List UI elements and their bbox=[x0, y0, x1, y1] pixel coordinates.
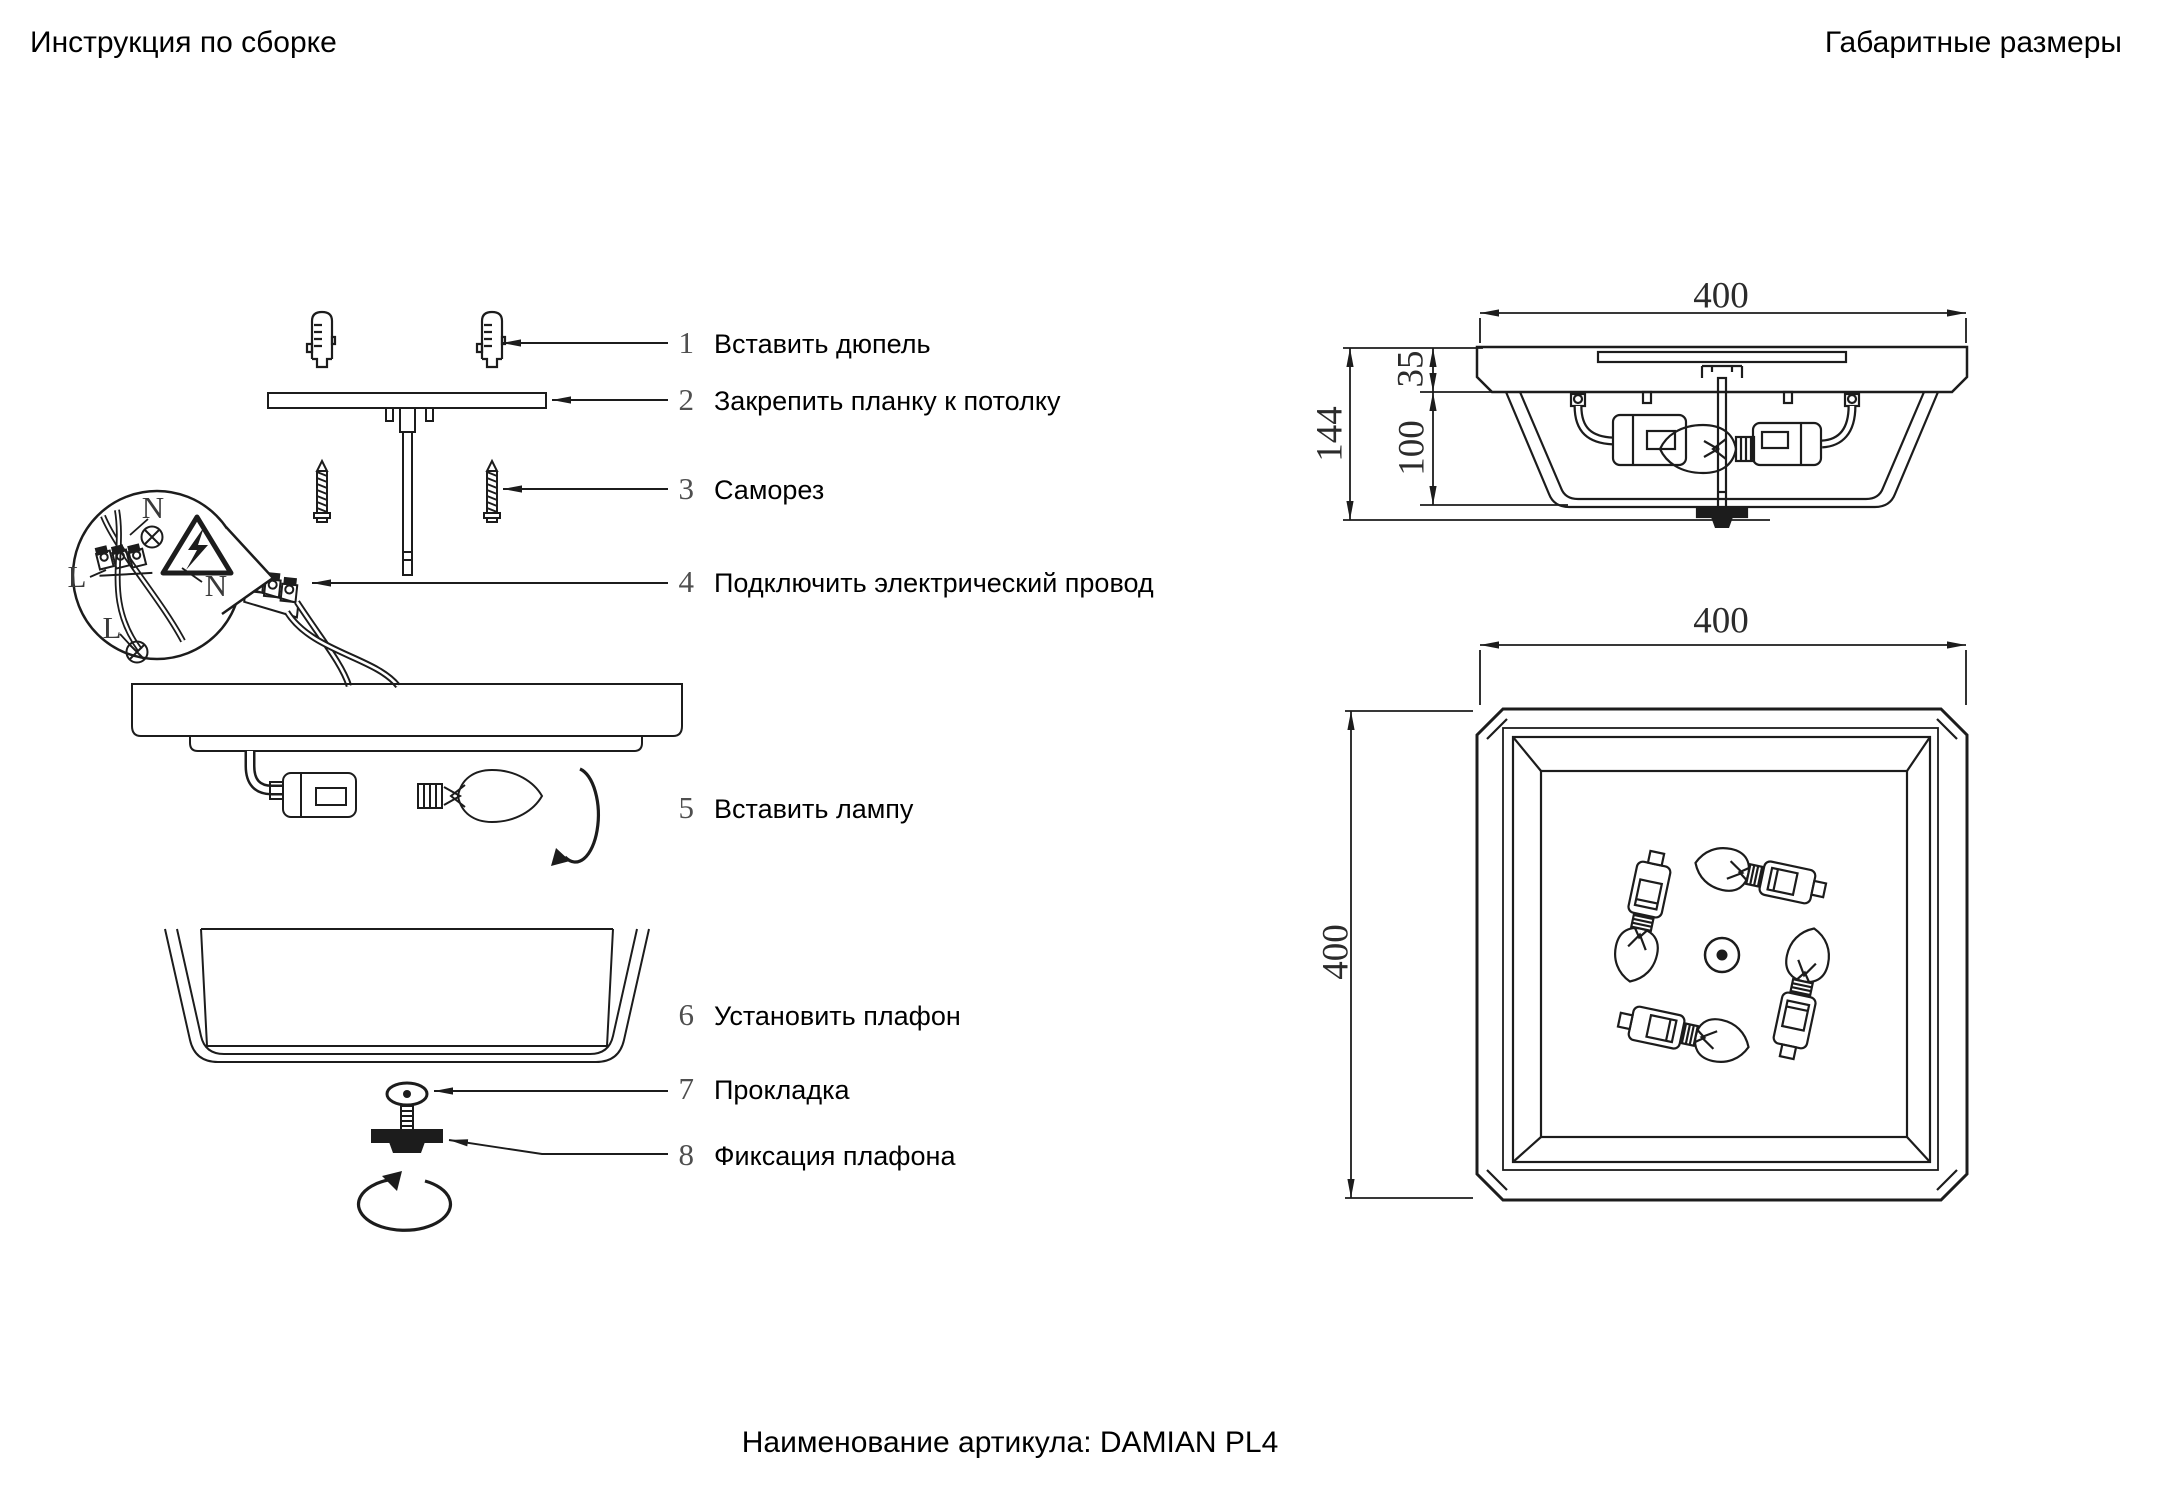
mounting-bar-drawing bbox=[268, 393, 546, 575]
screw-drawing bbox=[314, 461, 500, 522]
step-number: 7 bbox=[648, 1071, 694, 1107]
finial-drawing bbox=[372, 1106, 442, 1153]
step-label: Установить плафон bbox=[714, 1001, 961, 1032]
assembly-step-4: 4 Подключить электрический провод bbox=[648, 564, 1154, 600]
wiring-label-l-left: L bbox=[68, 559, 87, 595]
article-name: Наименование артикула: DAMIAN PL4 bbox=[742, 1426, 1279, 1460]
technical-drawing bbox=[0, 0, 2174, 1500]
dimension-side-shade-height: 100 bbox=[1391, 420, 1434, 476]
assembly-step-1: 1 Вставить дюпель bbox=[648, 325, 931, 361]
wiring-label-l-bottom: L bbox=[103, 610, 122, 646]
assembly-step-3: 3 Саморез bbox=[648, 471, 824, 507]
dimension-side-total-height: 144 bbox=[1309, 406, 1352, 462]
step-label: Подключить электрический провод bbox=[714, 568, 1154, 599]
step-label: Фиксация плафона bbox=[714, 1141, 955, 1172]
dimension-top-width: 400 bbox=[1693, 600, 1749, 643]
side-view-drawing bbox=[1343, 313, 1967, 528]
assembly-step-6: 6 Установить плафон bbox=[648, 997, 961, 1033]
lamp-socket-drawing bbox=[250, 751, 356, 817]
assembly-step-8: 8 Фиксация плафона bbox=[648, 1137, 955, 1173]
step-number: 3 bbox=[648, 471, 694, 507]
step-label: Саморез bbox=[714, 475, 824, 506]
rotate-lamp-arrow-icon bbox=[551, 769, 598, 866]
top-view-drawing bbox=[1345, 645, 1967, 1200]
dimension-side-width: 400 bbox=[1693, 275, 1749, 318]
step-number: 1 bbox=[648, 325, 694, 361]
dowel-drawing bbox=[307, 312, 505, 367]
step-label: Вставить дюпель bbox=[714, 329, 931, 360]
wires-drawing bbox=[287, 602, 398, 686]
page-title-dimensions: Габаритные размеры bbox=[1825, 26, 2122, 60]
shade-drawing bbox=[165, 929, 649, 1062]
assembly-step-7: 7 Прокладка bbox=[648, 1071, 850, 1107]
instruction-sheet: Инструкция по сборке Габаритные размеры … bbox=[0, 0, 2174, 1500]
step-number: 5 bbox=[648, 790, 694, 826]
canopy-drawing bbox=[132, 684, 682, 751]
step-label: Прокладка bbox=[714, 1075, 850, 1106]
gasket-drawing bbox=[387, 1083, 427, 1105]
assembly-diagram bbox=[73, 312, 682, 1230]
step-number: 2 bbox=[648, 382, 694, 418]
step-number: 8 bbox=[648, 1137, 694, 1173]
assembly-step-2: 2 Закрепить планку к потолку bbox=[648, 382, 1060, 418]
assembly-step-5: 5 Вставить лампу bbox=[648, 790, 913, 826]
step-label: Вставить лампу bbox=[714, 794, 913, 825]
side-view-dimensions bbox=[1343, 313, 1966, 520]
page-title-assembly: Инструкция по сборке bbox=[30, 26, 337, 60]
dimension-top-height: 400 bbox=[1315, 924, 1358, 980]
dimension-side-plate-height: 35 bbox=[1390, 351, 1433, 388]
wiring-label-n-right: N bbox=[205, 568, 227, 604]
wiring-label-n-top: N bbox=[142, 490, 164, 526]
step-label: Закрепить планку к потолку bbox=[714, 386, 1060, 417]
rotate-shade-arrow-icon bbox=[358, 1171, 450, 1230]
step-number: 4 bbox=[648, 564, 694, 600]
bulb-drawing bbox=[418, 770, 542, 822]
step-number: 6 bbox=[648, 997, 694, 1033]
